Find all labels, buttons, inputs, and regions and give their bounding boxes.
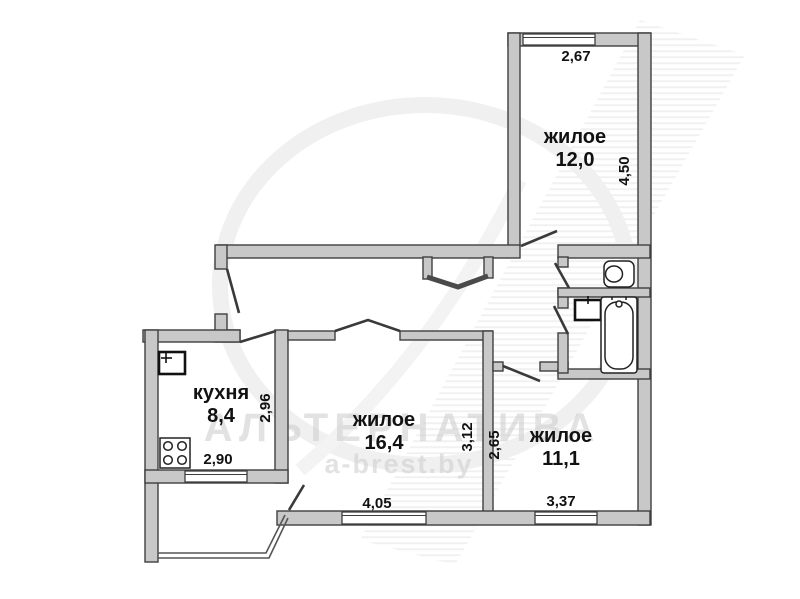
wall-segment	[493, 362, 503, 371]
wall-segment	[217, 245, 520, 258]
wall-segment	[145, 330, 158, 562]
kitchen-sink-icon	[159, 352, 185, 374]
wall-segment	[638, 33, 651, 525]
room-name-kitchen: кухня	[193, 382, 249, 404]
bathtub-icon	[601, 297, 637, 373]
room-area-living-top: 12,0	[556, 149, 595, 171]
dim-living-top-depth: 4,50	[616, 156, 633, 185]
kitchen-door-swing	[240, 331, 276, 342]
dim-living-right-width: 3,37	[546, 493, 575, 510]
room-area-kitchen: 8,4	[207, 405, 236, 427]
window	[523, 34, 595, 45]
dim-living-top-width: 2,67	[561, 48, 590, 65]
wall-segment	[400, 331, 492, 340]
double-door-swing	[335, 320, 400, 331]
wall-segment	[215, 245, 227, 269]
wall-segment	[558, 257, 568, 267]
floor-plan-canvas: АЛЬТЕРНАТИВА a-brest.by	[0, 0, 800, 599]
dim-kitchen-width: 2,90	[203, 451, 232, 468]
wall-segment	[558, 333, 568, 373]
window	[535, 512, 597, 524]
floor-plan-drawing: АЛЬТЕРНАТИВА a-brest.by	[0, 0, 800, 599]
wall-segment	[275, 330, 288, 483]
balcony-outline	[158, 515, 285, 553]
stove-icon	[160, 438, 190, 468]
window	[342, 512, 426, 524]
dim-living-middle-width: 4,05	[362, 495, 391, 512]
dim-living-middle-depth: 3,12	[459, 422, 476, 451]
balcony-door-swing	[289, 485, 304, 510]
room-area-living-middle: 16,4	[365, 432, 405, 454]
wall-segment	[288, 331, 335, 340]
wall-segment	[508, 33, 520, 246]
balcony	[158, 515, 288, 558]
room-area-living-right: 11,1	[542, 448, 580, 470]
dim-kitchen-depth: 2,96	[257, 393, 274, 422]
room-name-living-middle: жилое	[352, 409, 415, 431]
window	[185, 471, 247, 482]
washbasin-icon	[575, 296, 601, 320]
room-name-living-right: жилое	[529, 425, 592, 447]
room-name-living-top: жилое	[543, 126, 606, 148]
wall-segment	[558, 288, 650, 297]
balcony-outline	[158, 518, 288, 558]
wall-segment	[483, 331, 493, 522]
toilet-icon	[604, 261, 634, 287]
wall-segment	[558, 245, 650, 258]
dim-living-right-depth: 2,65	[486, 430, 503, 459]
